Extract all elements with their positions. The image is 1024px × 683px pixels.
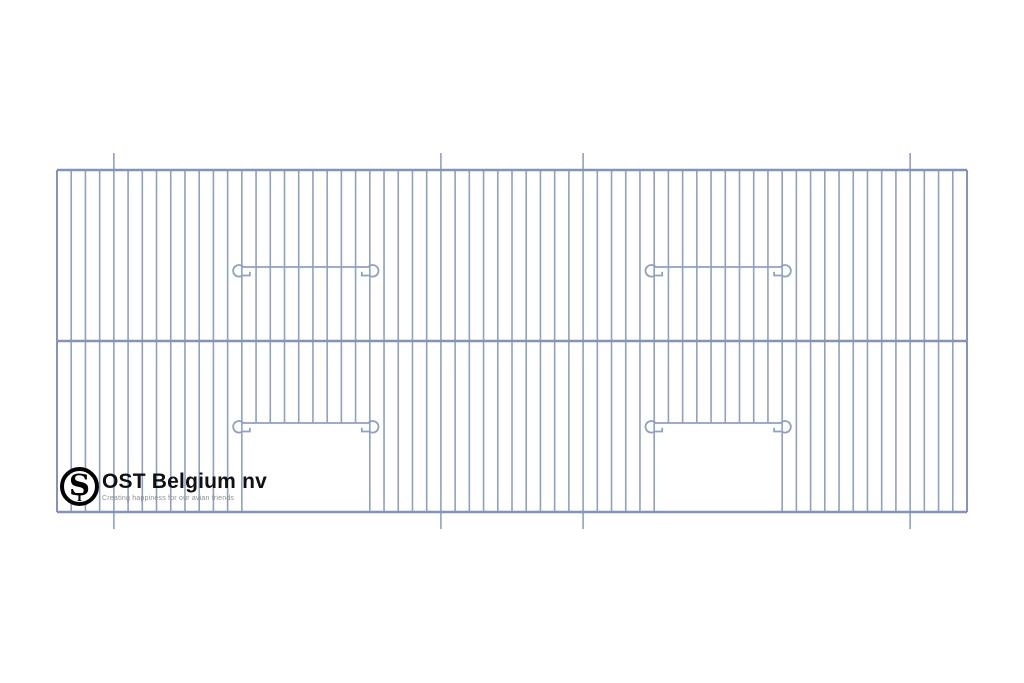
hook-latch-wire <box>233 421 378 433</box>
hook-latch-wire <box>233 265 378 277</box>
brand-logo: S T OST Belgium nv Creating happiness fo… <box>60 467 267 506</box>
logo-monogram-t: T <box>75 492 83 503</box>
brand-tagline: Creating happiness for our avian friends <box>102 495 267 503</box>
hook-latch-wire <box>645 265 790 277</box>
brand-name: OST Belgium nv <box>102 471 267 493</box>
logo-ring-icon: S T <box>60 467 99 506</box>
cage-front-drawing-page: S T OST Belgium nv Creating happiness fo… <box>0 0 1024 683</box>
brand-text-block: OST Belgium nv Creating happiness for ou… <box>102 471 267 503</box>
hook-latch-wire <box>645 421 790 433</box>
cage-front-svg <box>0 0 1024 683</box>
